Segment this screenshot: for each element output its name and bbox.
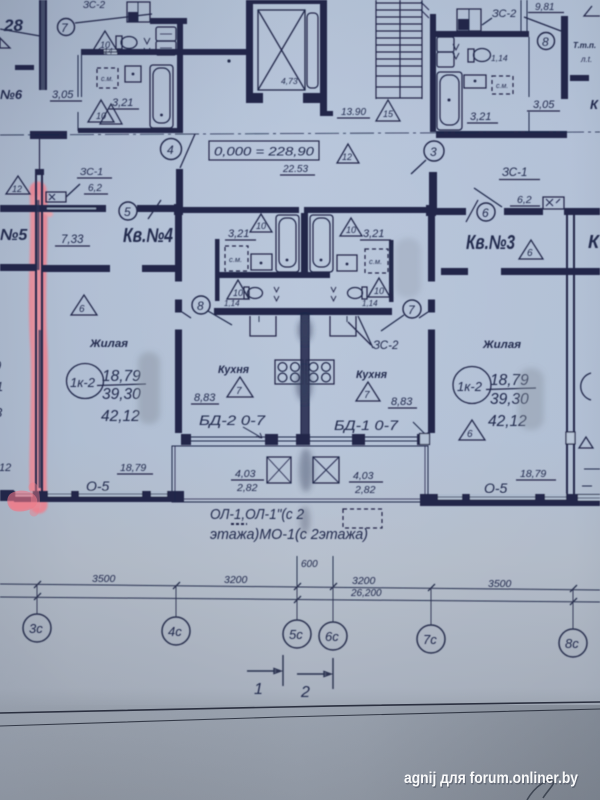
svg-text:15: 15 <box>383 109 394 119</box>
svg-text:6: 6 <box>482 206 489 220</box>
svg-text:4с: 4с <box>168 624 182 639</box>
svg-text:12: 12 <box>0 462 11 474</box>
svg-text:с.м.: с.м. <box>496 83 508 90</box>
svg-text:Кухня: Кухня <box>218 364 250 376</box>
svg-text:7с: 7с <box>423 632 437 647</box>
svg-text:Т.т.п.: Т.т.п. <box>573 41 596 50</box>
svg-text:3,21: 3,21 <box>470 111 491 123</box>
svg-text:1,14: 1,14 <box>224 299 240 308</box>
svg-text:с.м.: с.м. <box>229 255 242 264</box>
svg-text:3200: 3200 <box>352 575 376 587</box>
svg-text:1к-2: 1к-2 <box>457 379 483 394</box>
svg-text:7: 7 <box>364 390 370 401</box>
svg-text:8,83: 8,83 <box>391 396 413 408</box>
svg-text:ЗС-2: ЗС-2 <box>373 340 399 352</box>
svg-text:О-5: О-5 <box>484 480 508 496</box>
svg-text:1,14: 1,14 <box>97 47 113 56</box>
svg-text:1к-2: 1к-2 <box>70 375 96 390</box>
svg-text:3500: 3500 <box>92 573 116 585</box>
svg-text:12: 12 <box>12 184 22 194</box>
svg-text:4: 4 <box>167 143 174 157</box>
svg-text:600: 600 <box>301 559 318 570</box>
svg-text:ЗС-1: ЗС-1 <box>80 166 103 178</box>
svg-text:8,83: 8,83 <box>194 392 216 404</box>
svg-text:4,03: 4,03 <box>235 468 256 480</box>
svg-text:2,82: 2,82 <box>354 484 376 496</box>
svg-text:Жилая: Жилая <box>482 339 522 351</box>
svg-text:10: 10 <box>256 221 266 231</box>
svg-text:этажа)МО-1(с 2этажа): этажа)МО-1(с 2этажа) <box>210 526 368 543</box>
svg-text:26,200: 26,200 <box>350 588 382 599</box>
svg-text:л.t.: л.t. <box>580 55 592 64</box>
svg-text:18,79: 18,79 <box>520 468 546 480</box>
svg-text:Кухня: Кухня <box>356 369 388 381</box>
svg-text:3,21: 3,21 <box>363 228 384 240</box>
svg-text:6с: 6с <box>325 629 339 644</box>
svg-text:№6: №6 <box>0 87 23 102</box>
svg-text:1,14: 1,14 <box>491 53 508 63</box>
svg-text:42,12: 42,12 <box>101 408 140 425</box>
svg-text:6: 6 <box>79 304 85 315</box>
svg-text:39,30: 39,30 <box>102 386 141 403</box>
svg-text:4,73: 4,73 <box>281 76 298 86</box>
svg-text:1: 1 <box>0 379 3 394</box>
svg-text:2: 2 <box>300 684 310 701</box>
svg-text:18,79: 18,79 <box>120 462 146 474</box>
svg-text:5с: 5с <box>289 627 303 642</box>
svg-text:6,2: 6,2 <box>517 194 532 206</box>
svg-text:9: 9 <box>0 358 1 373</box>
svg-text:10: 10 <box>346 225 356 235</box>
svg-text:1,14: 1,14 <box>362 299 378 308</box>
svg-text:8: 8 <box>197 299 204 313</box>
svg-text:3,05: 3,05 <box>533 99 555 111</box>
svg-text:3500: 3500 <box>488 578 512 590</box>
svg-text:БД-1 0-7: БД-1 0-7 <box>334 417 399 433</box>
svg-text:ЗС-1: ЗС-1 <box>502 167 527 179</box>
svg-text:7,33: 7,33 <box>61 234 84 246</box>
svg-text:10: 10 <box>374 286 384 296</box>
svg-text:3с: 3с <box>29 621 43 636</box>
svg-text:с.м.: с.м. <box>101 76 113 83</box>
svg-text:10: 10 <box>96 111 106 121</box>
svg-text:10: 10 <box>233 288 243 298</box>
svg-text:БД-2 0-7: БД-2 0-7 <box>199 412 266 428</box>
svg-text:3,05: 3,05 <box>52 89 74 101</box>
svg-text:4,03: 4,03 <box>353 470 374 482</box>
svg-text:Кв.№3: Кв.№3 <box>466 232 515 254</box>
svg-text:ЗС-2: ЗС-2 <box>83 0 105 11</box>
svg-text:6,2: 6,2 <box>88 183 102 194</box>
svg-text:К: К <box>588 232 600 252</box>
svg-text:agnij для forum.onliner.by: agnij для forum.onliner.by <box>404 770 578 787</box>
svg-text:ЗС-2: ЗС-2 <box>492 8 516 20</box>
svg-text:с.м.: с.м. <box>369 257 382 266</box>
svg-text:12: 12 <box>342 152 352 162</box>
svg-text:28: 28 <box>3 16 23 35</box>
svg-text:8с: 8с <box>565 636 579 651</box>
svg-text:3: 3 <box>430 145 437 159</box>
svg-text:№5: №5 <box>0 227 28 244</box>
svg-text:3200: 3200 <box>224 574 248 586</box>
svg-text:13.90: 13.90 <box>341 107 366 118</box>
svg-text:6: 6 <box>527 248 533 259</box>
svg-text:2,82: 2,82 <box>236 482 258 494</box>
svg-text:0,000 = 228,90: 0,000 = 228,90 <box>214 145 314 159</box>
svg-text:ОЛ-1,ОЛ-1"(с 2: ОЛ-1,ОЛ-1"(с 2 <box>210 506 305 523</box>
svg-text:3,21: 3,21 <box>228 228 249 240</box>
svg-text:5: 5 <box>124 205 131 219</box>
svg-text:18,79: 18,79 <box>102 368 141 385</box>
svg-text:Жилая: Жилая <box>89 338 129 350</box>
svg-text:8: 8 <box>542 35 549 49</box>
svg-text:22.53: 22.53 <box>282 164 308 175</box>
svg-text:6: 6 <box>467 429 473 440</box>
svg-text:К: К <box>590 97 599 112</box>
svg-text:9,81: 9,81 <box>535 2 554 13</box>
svg-text:7: 7 <box>236 386 242 397</box>
svg-text:Кв.№4: Кв.№4 <box>123 225 173 247</box>
svg-text:3,21: 3,21 <box>112 97 133 109</box>
svg-text:1: 1 <box>254 681 263 698</box>
